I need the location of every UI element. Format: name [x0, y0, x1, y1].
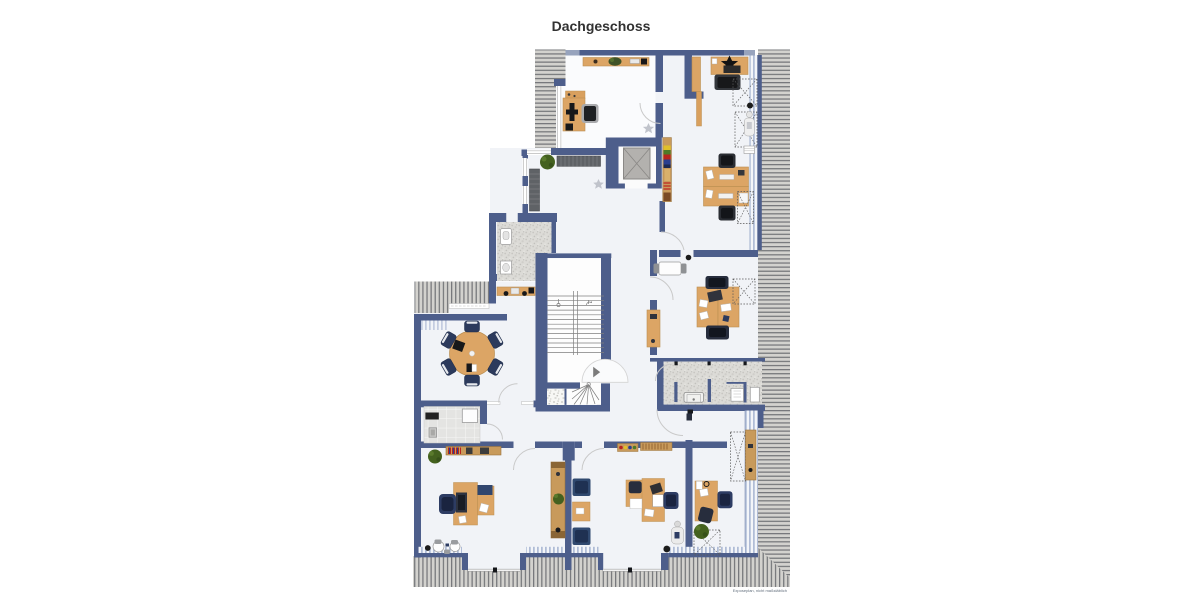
svg-text:Dachgeschoss: Dachgeschoss: [552, 18, 651, 34]
svg-text:Exposeplan, nicht maßstäblich: Exposeplan, nicht maßstäblich: [733, 588, 787, 593]
